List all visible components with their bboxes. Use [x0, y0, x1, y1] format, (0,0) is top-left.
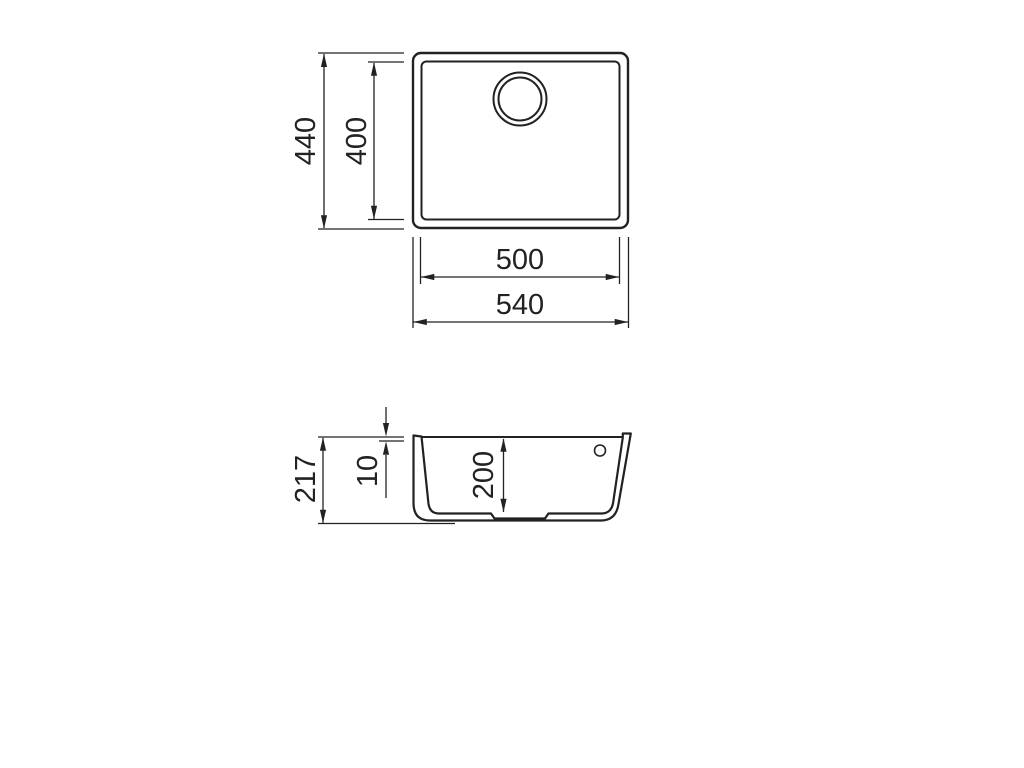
- dimension-rim-thickness: 10: [352, 407, 404, 498]
- arrowhead-right: [615, 319, 629, 325]
- technical-drawing-page: 440 400 500 540: [0, 0, 1024, 768]
- arrowhead-down: [500, 499, 506, 513]
- arrowhead-left: [421, 274, 435, 280]
- dim-label-440: 440: [290, 117, 322, 165]
- dim-label-217: 217: [290, 455, 322, 503]
- arrowhead-left: [413, 319, 427, 325]
- arrowhead-up: [320, 437, 326, 451]
- dim-label-540: 540: [496, 289, 544, 321]
- arrowhead-up: [383, 441, 389, 455]
- dim-label-500: 500: [496, 244, 544, 276]
- dim-label-10: 10: [352, 455, 384, 487]
- arrowhead-up: [500, 438, 506, 452]
- top-view: 440 400 500 540: [290, 53, 629, 328]
- drain-inner-circle: [499, 78, 542, 121]
- dim-label-400: 400: [341, 117, 373, 165]
- dimension-inner-height: 400: [341, 62, 404, 220]
- side-section-view: 217 10 200: [290, 407, 631, 524]
- arrowhead-up: [321, 54, 327, 68]
- dimension-bowl-depth: 200: [468, 438, 507, 512]
- arrowhead-down: [321, 215, 327, 229]
- drain-outer-circle: [494, 73, 547, 126]
- dimension-inner-width: 500: [421, 237, 620, 284]
- arrowhead-down: [371, 206, 377, 220]
- arrowhead-up: [371, 62, 377, 76]
- arrowhead-down: [320, 510, 326, 524]
- dim-label-200: 200: [468, 451, 500, 499]
- sink-inner-outline: [422, 62, 620, 220]
- arrowhead-down: [383, 423, 389, 437]
- sink-outer-outline: [413, 53, 628, 228]
- sink-technical-drawing: 440 400 500 540: [0, 0, 1024, 768]
- overflow-hole-circle: [595, 445, 606, 456]
- arrowhead-right: [606, 274, 620, 280]
